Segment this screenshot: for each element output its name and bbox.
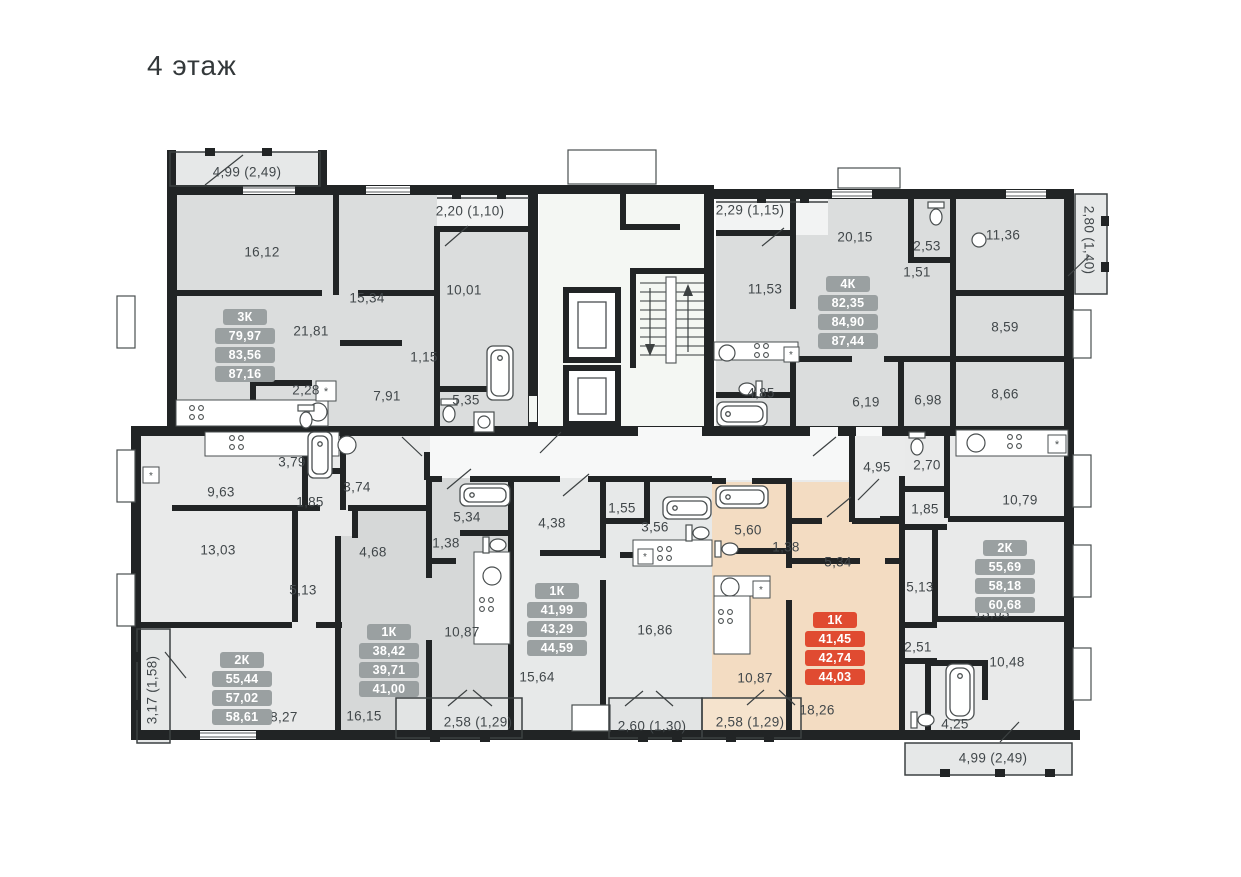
room-area-label: 1,38 bbox=[772, 540, 799, 555]
room-area-label: 4,25 bbox=[941, 717, 968, 732]
apartment-type-label: 1К bbox=[813, 612, 857, 628]
apartment-area-value: 55,44 bbox=[212, 671, 272, 687]
apartment-badge[interactable]: 1К38,4239,7141,00 bbox=[359, 624, 419, 697]
room-area-label: 5,34 bbox=[824, 555, 851, 570]
apartment-badge[interactable]: 1К41,4542,7444,03 bbox=[805, 612, 865, 685]
room-area-label: 2,51 bbox=[904, 640, 931, 655]
room-area-label: 4,38 bbox=[538, 516, 565, 531]
room-area-label: 15,64 bbox=[519, 670, 554, 685]
room-area-label: 7,91 bbox=[373, 389, 400, 404]
room-area-label: 1,15 bbox=[410, 350, 437, 365]
room-area-label: 3,17 (1,58) bbox=[145, 656, 160, 725]
apartment-area-value: 58,18 bbox=[975, 578, 1035, 594]
room-area-label: 16,86 bbox=[637, 623, 672, 638]
apartment-type-label: 2К bbox=[983, 540, 1027, 556]
room-area-label: 4,68 bbox=[359, 545, 386, 560]
room-area-label: 2,20 (1,10) bbox=[436, 204, 505, 219]
room-area-label: 1,51 bbox=[903, 265, 930, 280]
svg-text:*: * bbox=[324, 386, 329, 398]
room-area-label: 10,87 bbox=[444, 625, 479, 640]
apartment-area-value: 43,29 bbox=[527, 621, 587, 637]
apartment-area-value: 39,71 bbox=[359, 662, 419, 678]
apartment-area-value: 38,42 bbox=[359, 643, 419, 659]
room-area-label: 8,59 bbox=[991, 320, 1018, 335]
apartment-area-value: 57,02 bbox=[212, 690, 272, 706]
floor-plan-drawing: * * * * * * bbox=[0, 0, 1241, 877]
apartment-area-value: 84,90 bbox=[818, 314, 878, 330]
room-area-label: 4,99 (2,49) bbox=[213, 165, 282, 180]
svg-text:*: * bbox=[1055, 439, 1060, 451]
room-area-label: 2,29 (1,15) bbox=[716, 203, 785, 218]
apartment-area-value: 41,99 bbox=[527, 602, 587, 618]
apartment-area-value: 42,74 bbox=[805, 650, 865, 666]
room-area-label: 4,85 bbox=[747, 386, 774, 401]
room-area-label: 3,56 bbox=[641, 520, 668, 535]
apartment-area-value: 41,00 bbox=[359, 681, 419, 697]
room-area-label: 3,79 bbox=[278, 455, 305, 470]
apartment-badge[interactable]: 3К79,9783,5687,16 bbox=[215, 309, 275, 382]
room-area-label: 2,70 bbox=[913, 458, 940, 473]
apartment-badge[interactable]: 2К55,6958,1860,68 bbox=[975, 540, 1035, 613]
room-area-label: 1,85 bbox=[296, 495, 323, 510]
room-area-label: 1,38 bbox=[432, 536, 459, 551]
room-area-label: 2,80 (1,40) bbox=[1082, 206, 1097, 275]
svg-text:*: * bbox=[789, 350, 793, 361]
room-area-label: 10,01 bbox=[446, 283, 481, 298]
room-area-label: 1,55 bbox=[608, 501, 635, 516]
room-area-label: 2,58 (1,29) bbox=[444, 715, 513, 730]
room-area-label: 9,63 bbox=[207, 485, 234, 500]
room-area-label: 18,26 bbox=[799, 703, 834, 718]
room-area-label: 21,81 bbox=[293, 324, 328, 339]
apartment-area-value: 41,45 bbox=[805, 631, 865, 647]
apartment-badge[interactable]: 4К82,3584,9087,44 bbox=[818, 276, 878, 349]
room-area-label: 10,79 bbox=[1002, 493, 1037, 508]
svg-text:*: * bbox=[643, 552, 647, 563]
room-area-label: 11,36 bbox=[986, 228, 1020, 243]
room-area-label: 5,35 bbox=[452, 393, 479, 408]
room-area-label: 13,03 bbox=[200, 543, 235, 558]
room-area-label: 10,48 bbox=[989, 655, 1024, 670]
room-area-label: 10,87 bbox=[737, 671, 772, 686]
room-area-label: 2,28 bbox=[292, 383, 319, 398]
apartment-area-value: 44,59 bbox=[527, 640, 587, 656]
room-area-label: 2,58 (1,29) bbox=[716, 715, 785, 730]
room-area-label: 15,34 bbox=[349, 291, 384, 306]
room-area-label: 6,19 bbox=[852, 395, 879, 410]
floor-plan-page: 4 этаж bbox=[0, 0, 1241, 877]
elevators bbox=[566, 290, 618, 424]
apartment-type-label: 1К bbox=[367, 624, 411, 640]
room-area-label: 5,34 bbox=[453, 510, 480, 525]
apartment-area-value: 82,35 bbox=[818, 295, 878, 311]
apartment-area-value: 44,03 bbox=[805, 669, 865, 685]
apartment-area-value: 83,56 bbox=[215, 347, 275, 363]
room-area-label: 16,15 bbox=[346, 709, 381, 724]
room-area-label: 3,74 bbox=[343, 480, 370, 495]
room-area-label: 5,60 bbox=[734, 523, 761, 538]
svg-text:*: * bbox=[149, 471, 153, 482]
room-area-label: 5,13 bbox=[906, 580, 933, 595]
apartment-type-label: 2К bbox=[220, 652, 264, 668]
svg-text:*: * bbox=[759, 585, 763, 596]
room-area-label: 2,53 bbox=[913, 239, 940, 254]
room-area-label: 2,60 (1,30) bbox=[618, 719, 687, 734]
room-area-label: 5,13 bbox=[289, 583, 316, 598]
apartment-area-value: 87,16 bbox=[215, 366, 275, 382]
apartment-area-value: 79,97 bbox=[215, 328, 275, 344]
washer-icon bbox=[474, 412, 494, 432]
room-area-label: 16,12 bbox=[244, 245, 279, 260]
room-area-label: 8,66 bbox=[991, 387, 1018, 402]
apartment-area-value: 55,69 bbox=[975, 559, 1035, 575]
room-area-label: 11,53 bbox=[748, 282, 782, 297]
apartment-badge[interactable]: 1К41,9943,2944,59 bbox=[527, 583, 587, 656]
room-area-label: 20,15 bbox=[837, 230, 872, 245]
apartment-area-value: 58,61 bbox=[212, 709, 272, 725]
apartment-type-label: 3К bbox=[223, 309, 267, 325]
apartment-badge[interactable]: 2К55,4457,0258,61 bbox=[212, 652, 272, 725]
room-area-label: 4,99 (2,49) bbox=[959, 751, 1028, 766]
apartment-area-value: 87,44 bbox=[818, 333, 878, 349]
room-area-label: 4,95 bbox=[863, 460, 890, 475]
apartment-area-value: 60,68 bbox=[975, 597, 1035, 613]
apartment-type-label: 4К bbox=[826, 276, 870, 292]
apartment-type-label: 1К bbox=[535, 583, 579, 599]
room-area-label: 6,98 bbox=[914, 393, 941, 408]
room-area-label: 1,85 bbox=[911, 502, 938, 517]
